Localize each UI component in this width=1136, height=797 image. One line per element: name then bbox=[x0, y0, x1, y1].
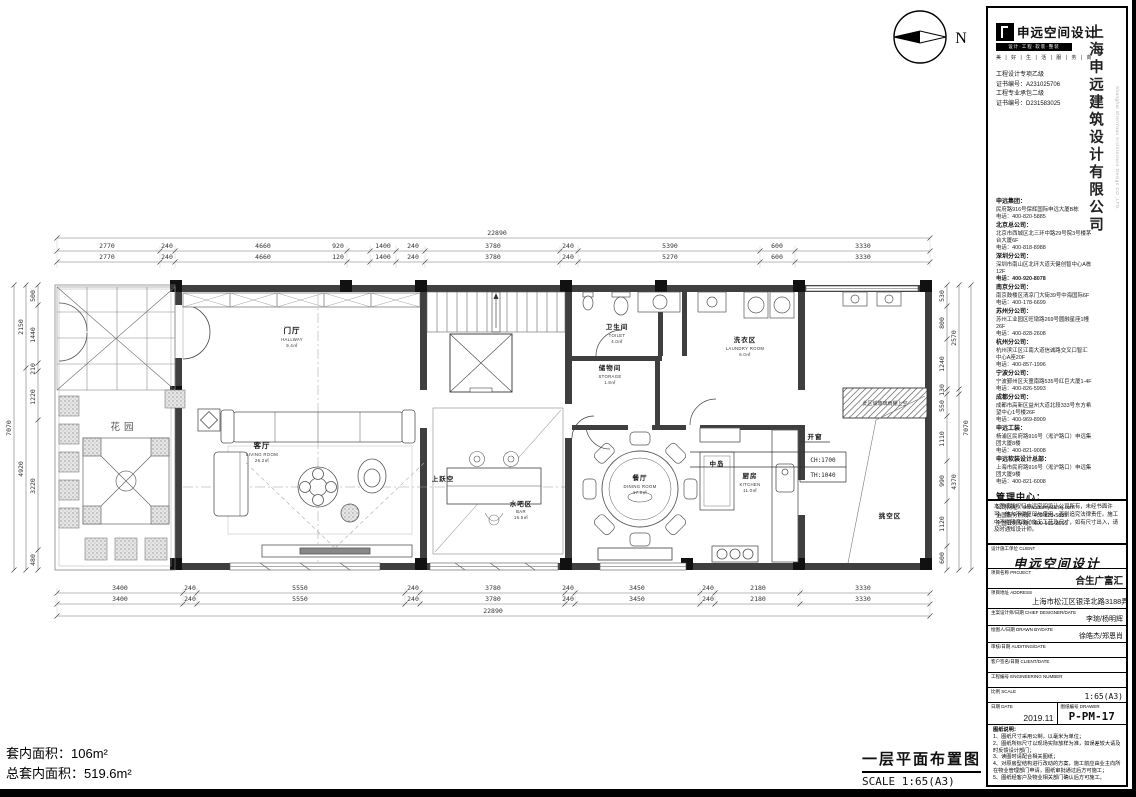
svg-text:2180: 2180 bbox=[750, 595, 766, 603]
svg-text:3220: 3220 bbox=[29, 478, 37, 494]
svg-text:3780: 3780 bbox=[485, 584, 501, 592]
svg-text:3780: 3780 bbox=[485, 253, 501, 261]
svg-text:3780: 3780 bbox=[485, 242, 501, 250]
field-date-drawer: 日期 DATE 2019.11 图纸编号 DRAWER P-PM-17 bbox=[988, 703, 1126, 725]
dim-top: 22890 2770 240 4660 920 1400 240 3780 24… bbox=[55, 229, 933, 268]
svg-text:LAUNDRY ROOM: LAUNDRY ROOM bbox=[726, 346, 765, 351]
svg-text:920: 920 bbox=[332, 242, 344, 250]
svg-text:9.4㎡: 9.4㎡ bbox=[286, 342, 298, 348]
label-bar: 水吧区 bbox=[510, 499, 533, 508]
client-signature: 申远空间设计 bbox=[988, 553, 1126, 572]
svg-text:240: 240 bbox=[562, 595, 574, 603]
sheet-right-border bbox=[1132, 0, 1136, 797]
svg-text:120: 120 bbox=[332, 253, 344, 261]
dining-table bbox=[583, 432, 697, 560]
field-drawing-number: 图纸编号 DRAWER P-PM-17 bbox=[1057, 703, 1127, 724]
staircase bbox=[427, 292, 565, 332]
svg-text:240: 240 bbox=[562, 253, 574, 261]
svg-text:240: 240 bbox=[702, 595, 714, 603]
svg-text:3330: 3330 bbox=[855, 242, 871, 250]
branch-item: 杭州分公司： 杭州滨江区江南大道信诚路交叉口智汇中心A座20F 电话：400-8… bbox=[996, 340, 1092, 369]
svg-text:1220: 1220 bbox=[29, 389, 37, 405]
copyright-note: 本图纸版权归申远空间设计公司所有，未经书面许可，他人不得复印与使用，否则追究法律… bbox=[988, 499, 1126, 545]
svg-text:990: 990 bbox=[938, 475, 946, 487]
branch-item: 南京分公司： 南京鼓楼区清凉门大街39号中海国际6F 电话：400-178-66… bbox=[996, 285, 1092, 307]
svg-text:5550: 5550 bbox=[292, 595, 308, 603]
drawing-sheet: N bbox=[0, 0, 1136, 797]
svg-text:240: 240 bbox=[407, 584, 419, 592]
svg-text:KITCHEN: KITCHEN bbox=[740, 482, 761, 487]
ceiling-height-note: CH:1700 bbox=[810, 457, 836, 464]
dim-left: 7070 2150 4920 500 1440 210 1220 3220 48… bbox=[5, 283, 41, 573]
threshold-height-note: TH:1040 bbox=[810, 472, 836, 479]
svg-text:240: 240 bbox=[184, 595, 196, 603]
label-living: 客厅 bbox=[253, 440, 271, 450]
svg-text:240: 240 bbox=[407, 253, 419, 261]
svg-text:480: 480 bbox=[29, 554, 37, 566]
svg-text:3330: 3330 bbox=[855, 253, 871, 261]
field-client-sign: 客户签名/日期 CLIENT/DATE bbox=[988, 658, 1126, 673]
svg-text:240: 240 bbox=[407, 595, 419, 603]
north-compass: N bbox=[894, 11, 967, 63]
svg-text:3450: 3450 bbox=[629, 584, 645, 592]
svg-text:1110: 1110 bbox=[938, 431, 946, 447]
svg-text:5270: 5270 bbox=[662, 253, 678, 261]
drawing-notes: 图纸说明： 1、图纸尺寸采用公制，以毫米为单位； 2、图纸所标尺寸以现场实际放样… bbox=[988, 725, 1126, 787]
label-laundry: 洗衣区 bbox=[734, 335, 757, 344]
svg-text:800: 800 bbox=[938, 317, 946, 329]
sheet-bottom-border bbox=[0, 789, 1136, 797]
field-address: 项目地址 ADDRESS 上海市松江区银泽北路3188弄195号 bbox=[988, 589, 1126, 609]
svg-text:2770: 2770 bbox=[99, 242, 115, 250]
svg-text:240: 240 bbox=[184, 584, 196, 592]
area-summary: 套内面积：106m² 总套内面积：519.6m² bbox=[6, 744, 132, 784]
laundry-fixtures bbox=[698, 292, 794, 318]
svg-text:HALLWAY: HALLWAY bbox=[281, 337, 303, 342]
field-designer: 主案设计师/日期 CHIEF DESIGNER/DATE 李琬/杨明辉 bbox=[988, 609, 1126, 626]
svg-text:550: 550 bbox=[938, 400, 946, 412]
field-audit: 审核/日期 AUDITING/DATE bbox=[988, 643, 1126, 658]
floor-plan-canvas: N bbox=[0, 0, 985, 745]
svg-text:130: 130 bbox=[938, 384, 946, 396]
svg-text:22890: 22890 bbox=[487, 229, 507, 237]
garden-planters bbox=[59, 390, 185, 560]
area-line-2: 总套内面积：519.6m² bbox=[6, 764, 132, 784]
svg-text:5390: 5390 bbox=[662, 242, 678, 250]
svg-text:1.8㎡: 1.8㎡ bbox=[604, 379, 616, 385]
north-label: N bbox=[955, 30, 967, 47]
svg-text:4920: 4920 bbox=[17, 461, 25, 477]
field-scale: 比例 SCALE 1:65(A3) bbox=[988, 688, 1126, 703]
drawing-scale: SCALE 1:65(A3) bbox=[862, 775, 992, 788]
dim-bottom: 3400 240 5550 240 3780 240 3450 240 2180… bbox=[55, 584, 933, 619]
terrace-fixtures bbox=[843, 292, 901, 306]
svg-text:3780: 3780 bbox=[485, 595, 501, 603]
svg-text:240: 240 bbox=[562, 242, 574, 250]
void-lines bbox=[848, 396, 925, 563]
label-island: 中岛 bbox=[710, 459, 725, 468]
drawing-title: 一层平面布置图 bbox=[862, 748, 981, 773]
living-furniture bbox=[198, 409, 425, 557]
title-block-header: 申远空间设计 设计·工程·软装·整装 美 | 好 | 生 | 活 | 服 | 务… bbox=[988, 8, 1126, 193]
svg-text:4370: 4370 bbox=[950, 474, 958, 490]
toilet-fixtures bbox=[583, 292, 680, 356]
svg-text:600: 600 bbox=[771, 242, 783, 250]
svg-text:240: 240 bbox=[161, 242, 173, 250]
svg-text:DINING ROOM: DINING ROOM bbox=[624, 484, 657, 489]
title-block-fields: 设计施工单位 CLIENT 申远空间设计 项目名称 PROJECT 合生广富汇 … bbox=[988, 545, 1126, 725]
company-name-english: Shanghai ShenYuan Architecture Design CO… bbox=[1115, 86, 1120, 256]
svg-text:STORAGE: STORAGE bbox=[598, 374, 621, 379]
svg-text:BAR: BAR bbox=[516, 509, 526, 514]
svg-text:LIVING ROOM: LIVING ROOM bbox=[246, 452, 278, 457]
svg-text:5550: 5550 bbox=[292, 584, 308, 592]
hallway-cabinets bbox=[183, 293, 420, 307]
garden-trellis bbox=[57, 287, 175, 390]
svg-text:240: 240 bbox=[702, 584, 714, 592]
svg-text:240: 240 bbox=[407, 242, 419, 250]
svg-text:4.0㎡: 4.0㎡ bbox=[611, 338, 623, 344]
field-drawn-by: 绘图人/日期 DRAWN BY/DATE 徐皓杰/郑恩肖 bbox=[988, 626, 1126, 643]
company-logo-bar: 设计·工程·软装·整装 bbox=[996, 43, 1072, 51]
label-storage: 储物间 bbox=[598, 363, 622, 372]
svg-text:4660: 4660 bbox=[255, 253, 271, 261]
entry-door bbox=[183, 305, 210, 359]
svg-text:3400: 3400 bbox=[112, 595, 128, 603]
svg-text:3330: 3330 bbox=[855, 595, 871, 603]
svg-text:1400: 1400 bbox=[375, 253, 391, 261]
kitchen-fixtures bbox=[700, 428, 798, 562]
branch-item: 成都分公司： 成都市高新区益州大道北段333号东方希望中心1号楼26F 电话：4… bbox=[996, 395, 1092, 424]
area-line-1: 套内面积：106m² bbox=[6, 744, 132, 764]
svg-text:26.2㎡: 26.2㎡ bbox=[255, 457, 270, 463]
svg-text:500: 500 bbox=[29, 290, 37, 302]
field-project: 项目名称 PROJECT 合生广富汇 bbox=[988, 569, 1126, 589]
svg-text:TOILET: TOILET bbox=[609, 333, 626, 338]
svg-text:600: 600 bbox=[771, 253, 783, 261]
canopy-hatch: 此区域玻璃雨棚上空 bbox=[843, 388, 927, 418]
field-client: 设计施工单位 CLIENT 申远空间设计 bbox=[988, 545, 1126, 569]
dim-right: 530 800 1240 130 550 1110 990 1120 600 2… bbox=[938, 283, 974, 573]
branch-item: 申远软装设计总部： 上海市民府路916号（淞沪路口）申远集团大厦9楼 电话：40… bbox=[996, 457, 1092, 486]
drawing-caption: 一层平面布置图 SCALE 1:65(A3) bbox=[862, 748, 992, 788]
svg-text:1440: 1440 bbox=[29, 327, 37, 343]
label-hallway: 门厅 bbox=[284, 325, 301, 335]
label-toilet: 卫生间 bbox=[606, 322, 629, 331]
svg-text:7070: 7070 bbox=[962, 420, 970, 436]
svg-text:210: 210 bbox=[29, 363, 37, 375]
field-date: 日期 DATE 2019.11 bbox=[988, 703, 1057, 724]
svg-text:3400: 3400 bbox=[112, 584, 128, 592]
svg-text:16.5㎡: 16.5㎡ bbox=[514, 514, 529, 520]
label-void-upper: 上跃空 bbox=[432, 474, 455, 483]
branch-item: 北京总公司： 北京市西城区北三环中路29号院3号楼茅台大厦6F 电话：400-8… bbox=[996, 223, 1092, 252]
svg-text:3330: 3330 bbox=[855, 584, 871, 592]
svg-text:7070: 7070 bbox=[5, 420, 13, 436]
canopy-note: 此区域玻璃雨棚上空 bbox=[862, 400, 907, 407]
label-kitchen: 厨房 bbox=[743, 471, 758, 480]
svg-text:1240: 1240 bbox=[938, 356, 946, 372]
svg-text:2770: 2770 bbox=[99, 253, 115, 261]
svg-text:17.0㎡: 17.0㎡ bbox=[633, 489, 648, 495]
company-logo-icon bbox=[996, 23, 1014, 41]
open-window-note: 开窗 bbox=[808, 432, 823, 441]
company-name-vertical: 上海申远建筑设计有限公司 bbox=[1085, 24, 1106, 239]
field-engineering-number: 工程编号 ENGINEERING NUMBER bbox=[988, 673, 1126, 688]
branch-item: 宁波分公司： 宁波鄞州区天童南路535号红巨大厦1-4F 电话：400-826-… bbox=[996, 371, 1092, 393]
svg-text:2570: 2570 bbox=[950, 330, 958, 346]
svg-text:22890: 22890 bbox=[483, 607, 503, 615]
branch-item: 申远工装： 杨浦区民府路916号（淞沪路口）申远集团大厦8楼 电话：400-82… bbox=[996, 426, 1092, 455]
svg-text:530: 530 bbox=[938, 290, 946, 302]
svg-text:240: 240 bbox=[161, 253, 173, 261]
elevator bbox=[450, 334, 512, 392]
svg-text:2180: 2180 bbox=[750, 584, 766, 592]
label-dining: 餐厅 bbox=[632, 473, 648, 482]
svg-text:2150: 2150 bbox=[17, 319, 25, 335]
label-garden: 花园 bbox=[110, 421, 137, 433]
title-block: 申远空间设计 设计·工程·软装·整装 美 | 好 | 生 | 活 | 服 | 务… bbox=[986, 6, 1128, 787]
svg-text:11.0㎡: 11.0㎡ bbox=[743, 487, 757, 493]
svg-text:6.0㎡: 6.0㎡ bbox=[739, 351, 751, 357]
label-void-right: 挑空区 bbox=[879, 511, 902, 520]
svg-text:1400: 1400 bbox=[375, 242, 391, 250]
svg-text:600: 600 bbox=[938, 552, 946, 564]
svg-text:3450: 3450 bbox=[629, 595, 645, 603]
branch-item: 申远集团： 民府路916号保辉国际申远大厦B栋 电话：400-820-5885 bbox=[996, 199, 1092, 221]
svg-text:4660: 4660 bbox=[255, 242, 271, 250]
branch-item: 苏州分公司： 苏州工业园区旺墩路269号圆融星座1幢26F 电话：400-828… bbox=[996, 309, 1092, 338]
branch-item: 深圳分公司： 深圳市南山区北环大道天健创智中心A栋12F 电话：400-920-… bbox=[996, 254, 1092, 283]
svg-text:1120: 1120 bbox=[938, 516, 946, 532]
garden-parterre bbox=[83, 438, 169, 524]
svg-text:240: 240 bbox=[562, 584, 574, 592]
